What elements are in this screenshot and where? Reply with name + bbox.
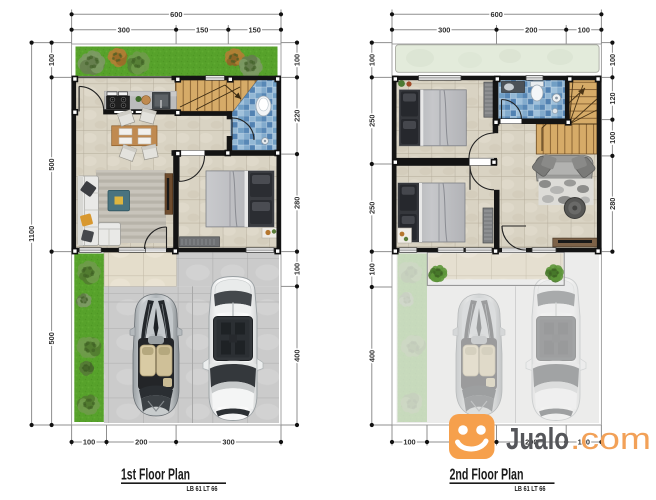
svg-text:600: 600 xyxy=(170,10,182,19)
svg-text:300: 300 xyxy=(222,438,234,447)
svg-text:200: 200 xyxy=(525,25,537,34)
svg-text:220: 220 xyxy=(293,110,302,122)
svg-text:120: 120 xyxy=(608,92,617,104)
svg-text:200: 200 xyxy=(135,438,147,447)
svg-text:1100: 1100 xyxy=(27,226,36,242)
svg-text:1st Floor Plan: 1st Floor Plan xyxy=(121,467,190,484)
svg-text:600: 600 xyxy=(491,10,503,19)
svg-text:2nd Floor Plan: 2nd Floor Plan xyxy=(450,467,524,484)
svg-text:100: 100 xyxy=(367,54,376,66)
svg-text:500: 500 xyxy=(47,332,56,344)
svg-text:500: 500 xyxy=(47,158,56,170)
svg-text:100: 100 xyxy=(608,54,617,66)
svg-text:100: 100 xyxy=(293,263,302,275)
svg-text:400: 400 xyxy=(293,350,302,362)
svg-text:280: 280 xyxy=(293,197,302,209)
svg-text:LB 61 LT 66: LB 61 LT 66 xyxy=(187,484,218,493)
svg-text:100: 100 xyxy=(578,25,590,34)
svg-text:250: 250 xyxy=(367,115,376,127)
svg-text:Jualo: Jualo xyxy=(506,421,569,456)
svg-text:.com: .com xyxy=(570,421,651,456)
svg-text:100: 100 xyxy=(403,438,415,447)
svg-text:100: 100 xyxy=(47,54,56,66)
svg-text:LB 61 LT 66: LB 61 LT 66 xyxy=(515,484,546,493)
svg-text:300: 300 xyxy=(438,25,450,34)
svg-text:100: 100 xyxy=(83,438,95,447)
svg-text:150: 150 xyxy=(248,25,260,34)
svg-text:280: 280 xyxy=(608,198,617,210)
svg-text:400: 400 xyxy=(367,350,376,362)
svg-text:100: 100 xyxy=(608,132,617,144)
svg-text:100: 100 xyxy=(367,263,376,275)
svg-text:150: 150 xyxy=(196,25,208,34)
svg-text:300: 300 xyxy=(118,25,130,34)
svg-text:100: 100 xyxy=(293,54,302,66)
svg-text:250: 250 xyxy=(367,202,376,214)
